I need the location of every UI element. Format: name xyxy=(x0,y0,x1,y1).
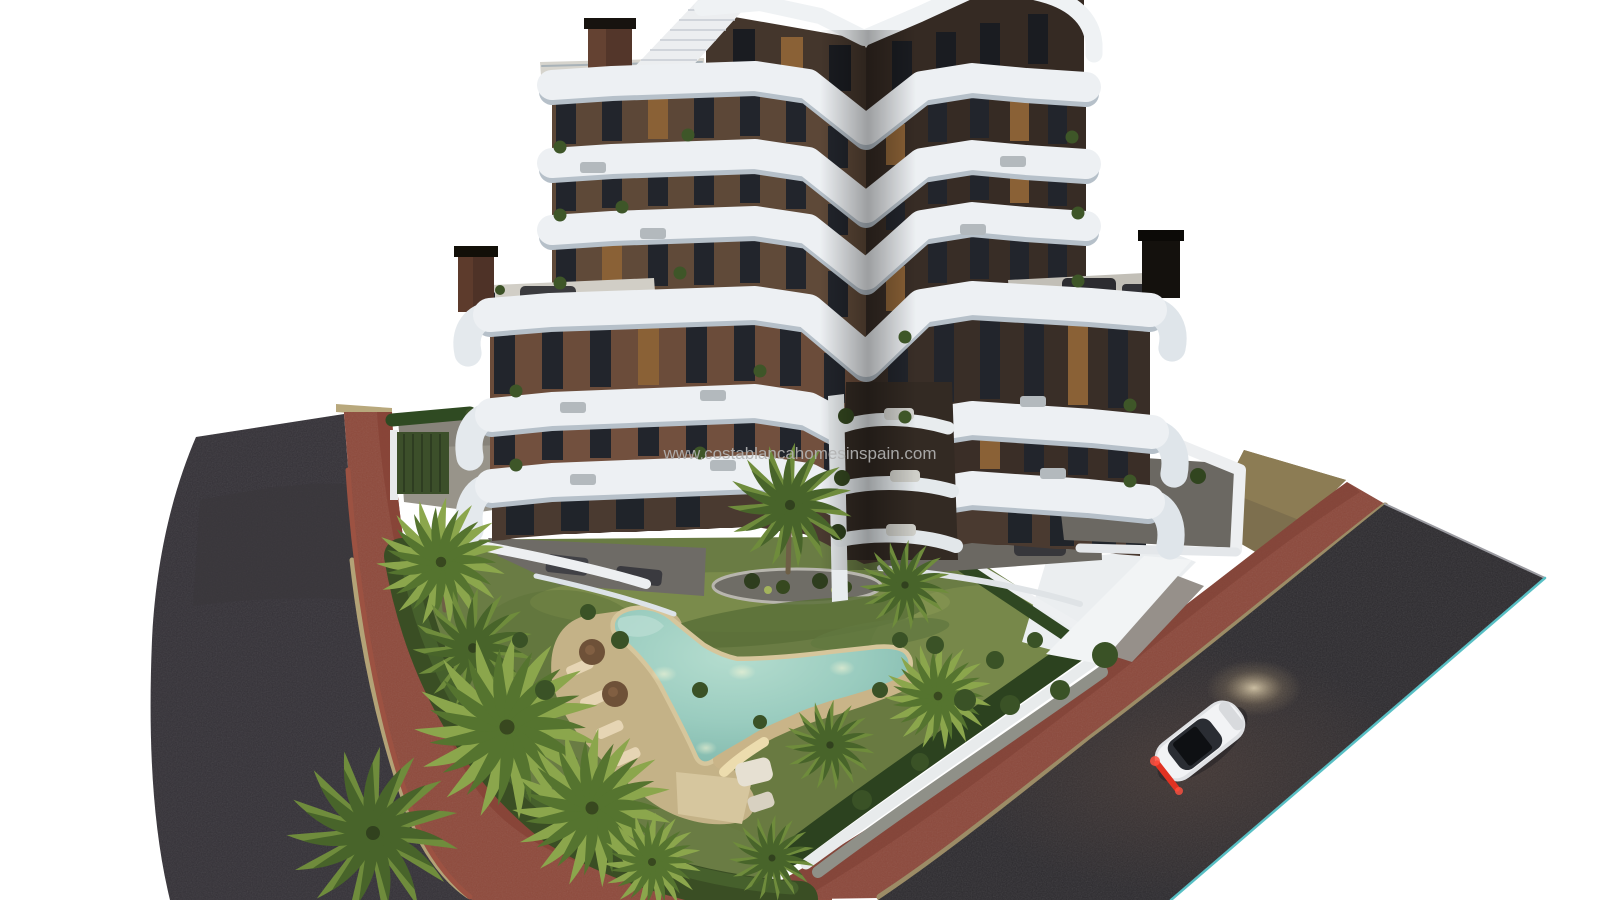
svg-text:www.costablancahomesinspain.co: www.costablancahomesinspain.com xyxy=(662,444,936,463)
